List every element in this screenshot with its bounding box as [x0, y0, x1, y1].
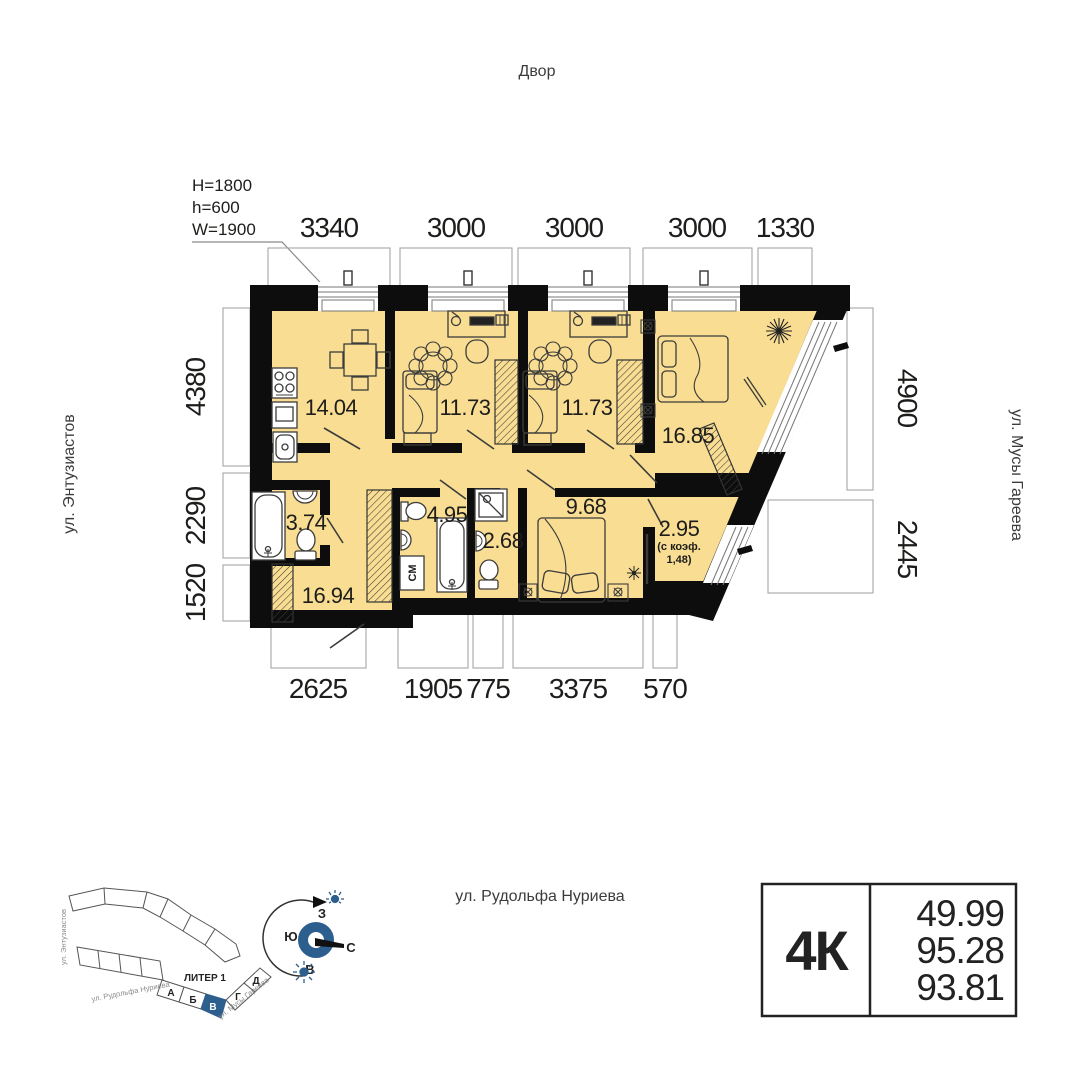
- dimensions-left: 4380 2290 1520: [180, 357, 211, 622]
- street-right-label: ул. Мусы Гареева: [1008, 409, 1025, 541]
- room-label-bathroom: 3.74: [286, 510, 327, 535]
- room-label-bedroom2: 11.73: [562, 395, 613, 420]
- room-label-loggia: 2.95: [659, 516, 700, 541]
- total-area-value: 95.28: [916, 930, 1004, 971]
- window-bay-kitchen: [318, 271, 378, 311]
- room-label-kitchen: 14.04: [305, 395, 358, 420]
- bathtub-icon: [437, 518, 467, 592]
- window-bay-master: [668, 271, 740, 311]
- window-spec-h: h=600: [192, 198, 240, 217]
- apartment-type: 4К: [785, 919, 849, 982]
- living-area-value: 49.99: [916, 893, 1004, 934]
- loggia-note-1: (с коэф.: [657, 541, 701, 553]
- site-section-label-V: В: [209, 1002, 216, 1013]
- compass-west: З: [318, 906, 326, 921]
- window-spec-W: W=1900: [192, 220, 256, 239]
- compass: З Ю С В: [263, 890, 356, 983]
- wardrobe-icon: [495, 360, 518, 444]
- dim-top-3: 3000: [545, 212, 604, 243]
- site-liter-label: ЛИТЕР 1: [184, 973, 226, 984]
- kitchen-sink-icon: [273, 432, 297, 462]
- dim-right-2: 2445: [892, 520, 923, 579]
- room-label-bedroom3: 9.68: [566, 494, 607, 519]
- street-left-label: ул. Энтузиастов: [61, 414, 78, 533]
- room-label-bathroom2: 4.95: [427, 502, 468, 527]
- room-label-wc: 2.68: [483, 528, 524, 553]
- shower-icon: [475, 489, 507, 521]
- room-label-master: 16.85: [662, 423, 715, 448]
- bathtub-icon: [252, 492, 285, 560]
- dim-top-4: 3000: [668, 212, 727, 243]
- site-section-label-B: Б: [189, 995, 196, 1006]
- compass-south: Ю: [284, 929, 297, 944]
- compass-north: С: [346, 940, 356, 955]
- washing-machine-label: СМ: [407, 565, 419, 582]
- apartment-info-card: 4К 49.99 95.28 93.81: [762, 884, 1016, 1016]
- dim-left-3: 1520: [180, 563, 211, 622]
- dim-top-5: 1330: [756, 212, 815, 243]
- dim-right-1: 4900: [892, 369, 923, 428]
- dim-bottom-1: 2625: [289, 673, 348, 704]
- plant-icon: [627, 566, 641, 580]
- room-label-bedroom1: 11.73: [440, 395, 491, 420]
- dim-bottom-5: 570: [643, 673, 687, 704]
- sun-icon: [326, 890, 344, 903]
- wardrobe-icon: [367, 490, 392, 602]
- dim-top-1: 3340: [300, 212, 359, 243]
- dimensions-bottom: 2625 1905 775 3375 570: [289, 673, 687, 704]
- window-spec-H: H=1800: [192, 176, 252, 195]
- dimensions-right: 4900 2445: [892, 369, 923, 579]
- window-bay-bedroom2: [548, 271, 628, 311]
- dimensions-top: 3340 3000 3000 3000 1330: [300, 212, 815, 243]
- site-street-left: ул. Энтузиастов: [59, 909, 68, 965]
- dim-bottom-3: 775: [466, 673, 510, 704]
- dim-bottom-2: 1905: [404, 673, 463, 704]
- wardrobe-icon: [617, 360, 643, 444]
- wardrobe-icon: [272, 564, 293, 622]
- toilet-icon: [479, 560, 498, 589]
- courtyard-label: Двор: [519, 63, 556, 80]
- dim-bottom-4: 3375: [549, 673, 608, 704]
- reduced-area-value: 93.81: [916, 967, 1004, 1008]
- stove-icon: [272, 368, 297, 398]
- loggia-note-2: 1,48): [666, 554, 691, 566]
- floorplan-canvas: Двор ул. Энтузиастов ул. Мусы Гареева ул…: [0, 0, 1080, 1080]
- dim-top-2: 3000: [427, 212, 486, 243]
- site-section-label-A: А: [167, 988, 174, 999]
- floorplan-page: Двор ул. Энтузиастов ул. Мусы Гареева ул…: [0, 0, 1080, 1080]
- window-bay-bedroom1: [428, 271, 508, 311]
- dim-left-1: 4380: [180, 357, 211, 416]
- room-label-hall: 16.94: [302, 583, 355, 608]
- site-plan: ЛИТЕР 1 А Б В Г Д ул. Энтузиастов ул. Ру…: [59, 888, 271, 1021]
- dim-left-2: 2290: [180, 486, 211, 545]
- toilet-icon: [401, 502, 426, 521]
- oven-icon: [272, 402, 297, 428]
- sun-icon: [293, 961, 315, 983]
- street-bottom-label: ул. Рудольфа Нуриева: [455, 888, 625, 905]
